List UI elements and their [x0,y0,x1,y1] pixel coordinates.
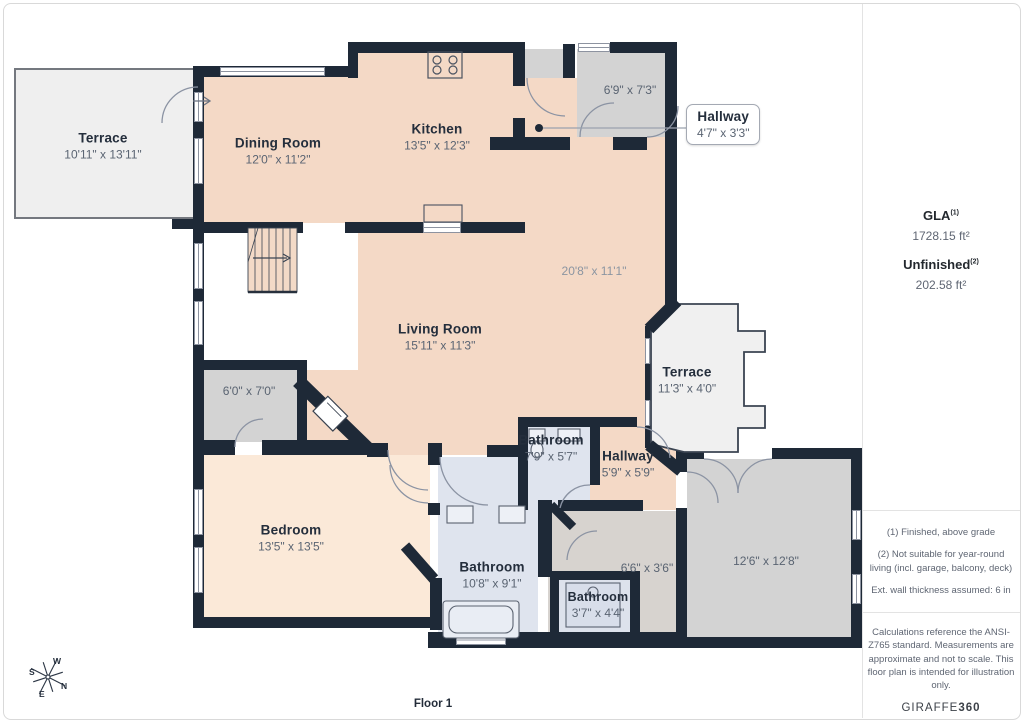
wall [687,448,704,459]
room-porch [525,49,565,78]
window [194,243,203,289]
label-terrace-right: Terrace 11'3" x 4'0" [658,365,716,396]
label-bathroom-small: Bathroom 3'7" x 4'4" [568,590,629,620]
gla-value: 1728.15 ft² [866,229,1016,243]
label-garage-dims: 12'6" x 12'8" [733,554,799,568]
room-closet [204,370,297,442]
wall [600,417,637,427]
wall [513,42,525,86]
wall [428,443,442,457]
wall [428,457,440,465]
floor-label: Floor 1 [414,698,452,710]
window [645,338,654,364]
label-bathroom-main: Bathroom 10'8" x 9'1" [459,560,524,591]
label-closet-dims: 6'0" x 7'0" [223,384,275,398]
wall [193,440,235,455]
window [220,67,325,76]
label-terrace-top: Terrace 10'11" x 13'11" [64,131,141,162]
wall [851,448,862,648]
window [645,400,654,426]
label-kitchen: Kitchen 13'5" x 12'3" [404,122,470,153]
label-hallway-mid: Hallway 5'9" x 5'9" [602,449,654,480]
sidebar-divider [862,4,863,718]
wall [668,417,676,427]
wall [528,417,590,427]
sidebar-section-divider [862,612,1020,613]
stairs [248,228,297,292]
wall [613,137,647,150]
wall [538,500,552,577]
unfinished-value: 202.58 ft² [866,278,1016,292]
compass-north-label: N [61,681,67,691]
wall [487,445,520,457]
unfinished-label: Unfinished(2) [866,257,1016,272]
gla-label: GLA(1) [866,208,1016,223]
window [456,635,506,645]
label-living-room: Living Room 15'11" x 11'3" [398,322,482,353]
label-dining-room: Dining Room 12'0" x 11'2" [235,136,321,167]
floorplan-page: Terrace 10'11" x 13'11" Dining Room 12'0… [0,0,1024,723]
wall [687,637,862,648]
wall [518,417,528,510]
compass-icon [22,651,73,702]
window [578,43,610,52]
wall [367,443,388,457]
window [852,574,861,604]
room-living-left [307,370,358,445]
wall [665,42,677,306]
label-bathroom-top: Bathroom 7'9" x 5'7" [518,433,583,464]
sidebar-notes: (1) Finished, above grade (2) Not suitab… [866,526,1016,597]
compass-east-label: E [39,689,45,699]
wall [563,44,575,78]
wall [193,617,440,628]
compass-west-label: W [53,656,61,666]
wall [428,503,440,515]
note-finished: (1) Finished, above grade [866,526,1016,539]
compass-south-label: S [29,667,35,677]
wall [193,360,307,370]
window-pass-through [423,222,461,233]
wall [590,417,600,485]
wall [172,219,203,229]
note-not-suitable: (2) Not suitable for year-round living (… [866,548,1016,575]
sidebar-section-divider [862,510,1020,511]
giraffe360-logo: GIRAFFE360 [866,702,1016,714]
wall [262,440,367,455]
window [194,138,203,184]
sidebar-area-summary: GLA(1) 1728.15 ft² Unfinished(2) 202.58 … [866,208,1016,292]
hallway-callout: Hallway 4'7" x 3'3" [686,104,760,145]
label-entry-dims: 6'9" x 7'3" [604,83,656,97]
wall [772,448,851,459]
room-garage [687,459,851,637]
window [194,301,203,345]
wall [558,500,643,511]
window [194,547,203,593]
wall [676,508,687,648]
wall [193,222,303,233]
disclaimer-text: Calculations reference the ANSI-Z765 sta… [866,626,1016,692]
wall [490,137,570,150]
window [194,489,203,535]
window [852,510,861,540]
wall [630,571,640,632]
wall [348,42,525,53]
label-bedroom: Bedroom 13'5" x 13'5" [258,523,324,554]
sidebar-disclaimer-block: Calculations reference the ANSI-Z765 sta… [866,626,1016,714]
note-wall-thickness: Ext. wall thickness assumed: 6 in [866,584,1016,597]
wall [676,448,687,472]
wall [550,571,559,632]
window [194,92,203,122]
label-storage-dims: 6'6" x 3'6" [621,561,673,575]
label-living-overall-dims: 20'8" x 11'1" [562,264,627,278]
